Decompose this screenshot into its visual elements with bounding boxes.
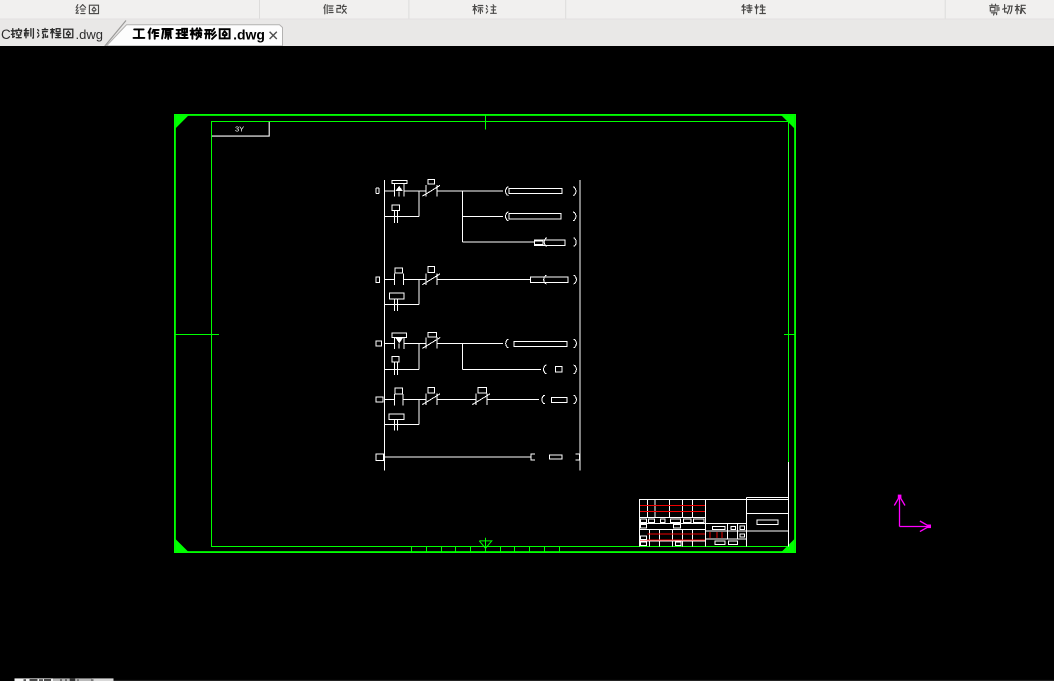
svg-text:.dwg: .dwg	[233, 27, 265, 43]
svg-text:.dwg: .dwg	[76, 27, 103, 42]
svg-text:C: C	[1, 27, 11, 42]
svg-text:3Y: 3Y	[235, 125, 244, 134]
